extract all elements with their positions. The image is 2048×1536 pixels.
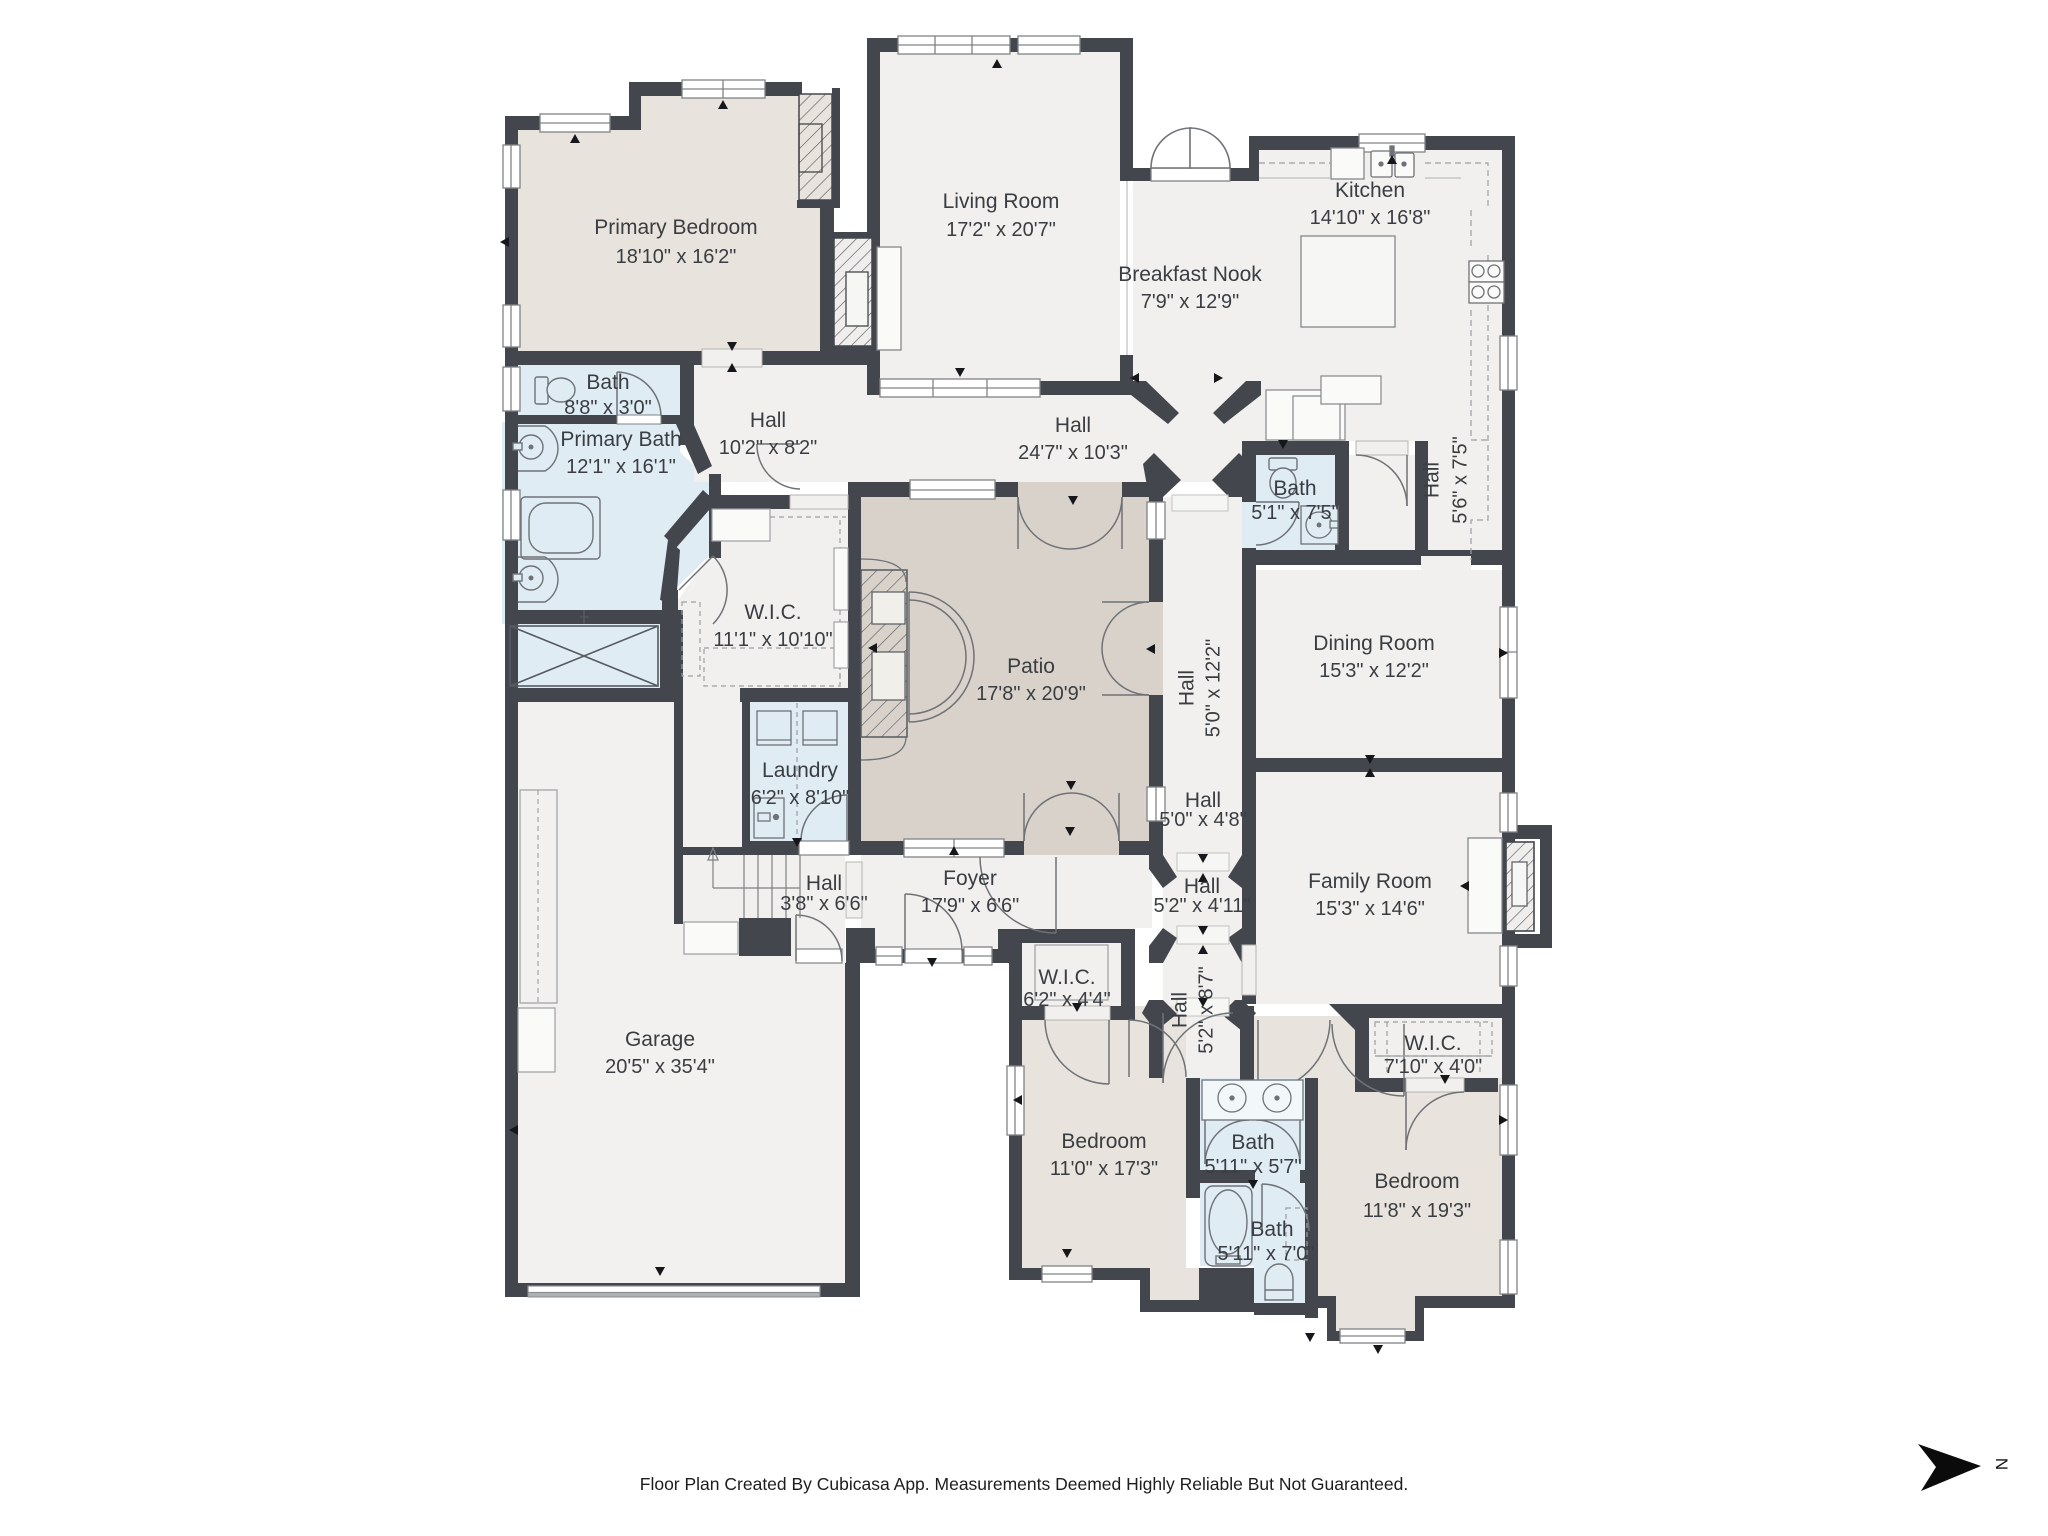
svg-text:N: N xyxy=(1992,1458,2011,1470)
svg-text:Hall: Hall xyxy=(750,409,786,432)
svg-text:Foyer: Foyer xyxy=(943,867,997,890)
svg-text:14'10" x 16'8": 14'10" x 16'8" xyxy=(1310,207,1431,229)
svg-text:10'2" x 8'2": 10'2" x 8'2" xyxy=(719,437,818,459)
svg-text:17'2" x 20'7": 17'2" x 20'7" xyxy=(946,219,1056,241)
svg-text:W.I.C.: W.I.C. xyxy=(744,601,801,624)
svg-text:Bath: Bath xyxy=(1250,1218,1293,1241)
svg-text:5'11" x 5'7": 5'11" x 5'7" xyxy=(1204,1156,1301,1178)
svg-text:5'0" x 12'2": 5'0" x 12'2" xyxy=(1202,639,1224,738)
svg-text:5'0" x 4'8": 5'0" x 4'8" xyxy=(1159,809,1246,831)
svg-text:5'6" x 7'5": 5'6" x 7'5" xyxy=(1449,436,1471,523)
svg-text:18'10" x 16'2": 18'10" x 16'2" xyxy=(616,246,737,268)
svg-text:17'8" x 20'9": 17'8" x 20'9" xyxy=(976,683,1086,705)
svg-text:5'2" x 8'7": 5'2" x 8'7" xyxy=(1195,966,1217,1053)
svg-text:12'1" x 16'1": 12'1" x 16'1" xyxy=(566,456,676,478)
svg-text:Garage: Garage xyxy=(625,1028,695,1051)
svg-text:Hall: Hall xyxy=(1176,670,1199,706)
svg-text:24'7" x 10'3": 24'7" x 10'3" xyxy=(1018,442,1128,464)
svg-text:20'5" x 35'4": 20'5" x 35'4" xyxy=(605,1056,715,1078)
svg-text:17'9" x 6'6": 17'9" x 6'6" xyxy=(921,895,1020,917)
svg-text:11'0" x 17'3": 11'0" x 17'3" xyxy=(1050,1158,1158,1180)
svg-text:Kitchen: Kitchen xyxy=(1335,179,1405,202)
svg-text:Bath: Bath xyxy=(1273,477,1316,500)
svg-text:Living Room: Living Room xyxy=(943,190,1060,213)
svg-text:Hall: Hall xyxy=(1055,414,1091,437)
svg-text:15'3" x 12'2": 15'3" x 12'2" xyxy=(1319,660,1429,682)
svg-text:11'8" x 19'3": 11'8" x 19'3" xyxy=(1363,1200,1471,1222)
svg-text:Hall: Hall xyxy=(1421,462,1444,498)
svg-text:Family Room: Family Room xyxy=(1308,870,1432,893)
svg-text:Laundry: Laundry xyxy=(762,759,838,782)
svg-text:3'8" x 6'6": 3'8" x 6'6" xyxy=(780,893,867,915)
svg-text:Floor Plan Created By Cubicasa: Floor Plan Created By Cubicasa App. Meas… xyxy=(640,1474,1408,1494)
svg-text:Hall: Hall xyxy=(806,872,842,895)
svg-text:Bath: Bath xyxy=(586,371,629,394)
svg-text:Primary Bath: Primary Bath xyxy=(560,428,681,451)
svg-text:W.I.C.: W.I.C. xyxy=(1038,966,1095,989)
svg-text:5'1" x 7'5": 5'1" x 7'5" xyxy=(1251,502,1338,524)
svg-text:W.I.C.: W.I.C. xyxy=(1404,1032,1461,1055)
svg-text:Hall: Hall xyxy=(1169,992,1192,1028)
svg-text:7'10" x 4'0": 7'10" x 4'0" xyxy=(1384,1056,1483,1078)
svg-text:5'11" x 7'0": 5'11" x 7'0" xyxy=(1217,1243,1314,1265)
svg-text:Patio: Patio xyxy=(1007,655,1055,678)
svg-text:Bedroom: Bedroom xyxy=(1374,1170,1459,1193)
svg-text:Bath: Bath xyxy=(1231,1131,1274,1154)
svg-text:15'3" x 14'6": 15'3" x 14'6" xyxy=(1315,898,1425,920)
svg-text:6'2" x 8'10": 6'2" x 8'10" xyxy=(751,787,850,809)
svg-text:6'2" x 4'4": 6'2" x 4'4" xyxy=(1023,989,1110,1011)
svg-text:11'1" x 10'10": 11'1" x 10'10" xyxy=(713,629,832,651)
svg-text:5'2" x 4'11": 5'2" x 4'11" xyxy=(1153,895,1250,917)
svg-text:Dining Room: Dining Room xyxy=(1313,632,1434,655)
svg-text:8'8" x 3'0": 8'8" x 3'0" xyxy=(564,397,651,419)
svg-text:Primary Bedroom: Primary Bedroom xyxy=(594,216,757,239)
svg-text:Breakfast Nook: Breakfast Nook xyxy=(1118,263,1262,286)
svg-text:Bedroom: Bedroom xyxy=(1061,1130,1146,1153)
svg-text:7'9" x 12'9": 7'9" x 12'9" xyxy=(1141,291,1240,313)
